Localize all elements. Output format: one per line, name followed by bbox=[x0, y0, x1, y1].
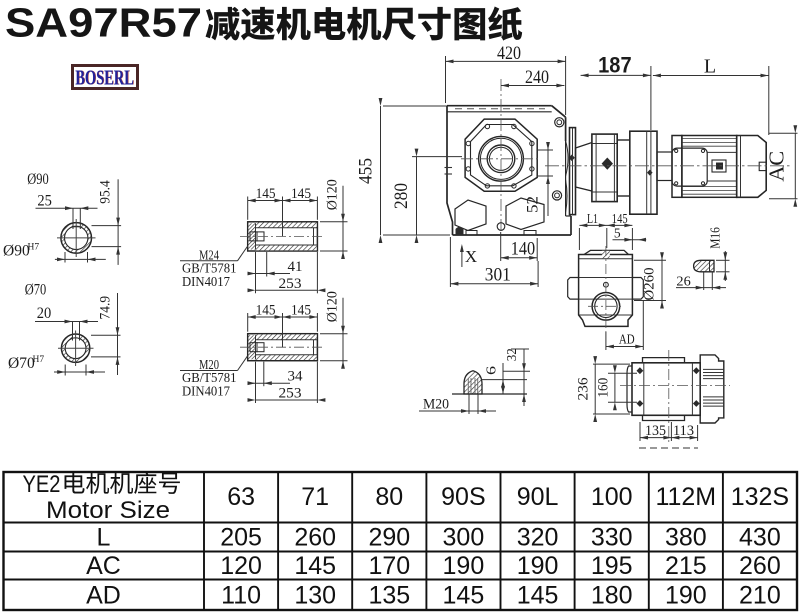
svg-text:145: 145 bbox=[256, 186, 276, 202]
svg-text:455: 455 bbox=[356, 158, 377, 184]
svg-text:AC: AC bbox=[86, 552, 121, 580]
svg-text:130: 130 bbox=[294, 582, 336, 610]
svg-text:430: 430 bbox=[739, 524, 781, 552]
svg-text:132S: 132S bbox=[731, 483, 789, 511]
svg-text:187: 187 bbox=[598, 53, 632, 78]
svg-text:120: 120 bbox=[220, 552, 262, 580]
svg-text:X: X bbox=[465, 247, 477, 266]
svg-text:380: 380 bbox=[665, 524, 707, 552]
svg-text:290: 290 bbox=[368, 524, 410, 552]
svg-text:Ø120: Ø120 bbox=[325, 179, 341, 210]
svg-text:M16: M16 bbox=[707, 227, 722, 249]
svg-text:300: 300 bbox=[443, 524, 485, 552]
svg-text:71: 71 bbox=[301, 483, 329, 511]
svg-text:140: 140 bbox=[511, 239, 535, 260]
svg-text:145: 145 bbox=[256, 303, 276, 319]
svg-text:110: 110 bbox=[221, 582, 261, 610]
svg-text:SA97R57: SA97R57 bbox=[5, 0, 202, 46]
svg-text:L: L bbox=[704, 56, 716, 78]
svg-text:34: 34 bbox=[288, 369, 304, 385]
svg-text:26: 26 bbox=[676, 273, 691, 288]
svg-text:170: 170 bbox=[368, 552, 410, 580]
svg-text:L: L bbox=[97, 524, 111, 552]
svg-text:AD: AD bbox=[86, 582, 121, 610]
svg-text:145: 145 bbox=[291, 303, 311, 319]
svg-text:H7: H7 bbox=[33, 355, 45, 365]
svg-text:195: 195 bbox=[591, 552, 633, 580]
svg-text:253: 253 bbox=[279, 386, 302, 402]
svg-text:205: 205 bbox=[220, 524, 262, 552]
svg-text:6: 6 bbox=[485, 366, 500, 375]
svg-text:95.4: 95.4 bbox=[97, 180, 113, 204]
svg-text:5: 5 bbox=[614, 225, 621, 240]
svg-text:25: 25 bbox=[37, 193, 52, 210]
svg-text:Motor Size: Motor Size bbox=[46, 497, 170, 524]
svg-text:330: 330 bbox=[591, 524, 633, 552]
svg-text:63: 63 bbox=[227, 483, 255, 511]
svg-text:190: 190 bbox=[665, 582, 707, 610]
svg-text:160: 160 bbox=[595, 378, 611, 398]
svg-text:Ø90: Ø90 bbox=[27, 171, 49, 188]
svg-text:AC: AC bbox=[765, 151, 789, 182]
svg-text:190: 190 bbox=[517, 552, 559, 580]
svg-text:20: 20 bbox=[37, 305, 52, 322]
svg-text:H7: H7 bbox=[28, 243, 40, 253]
svg-text:90S: 90S bbox=[441, 483, 485, 511]
svg-text:180: 180 bbox=[591, 582, 633, 610]
svg-text:240: 240 bbox=[525, 67, 549, 88]
svg-text:L1: L1 bbox=[587, 211, 598, 226]
svg-text:41: 41 bbox=[288, 259, 303, 275]
svg-text:Ø90: Ø90 bbox=[3, 243, 30, 260]
svg-text:Ø70: Ø70 bbox=[25, 282, 47, 299]
svg-text:260: 260 bbox=[739, 552, 781, 580]
svg-text:Ø120: Ø120 bbox=[325, 291, 341, 322]
svg-text:BOSERL: BOSERL bbox=[75, 66, 134, 90]
svg-text:145: 145 bbox=[291, 186, 311, 202]
svg-text:145: 145 bbox=[612, 211, 628, 226]
svg-text:52: 52 bbox=[524, 196, 541, 213]
svg-text:420: 420 bbox=[497, 43, 521, 64]
svg-text:Ø260: Ø260 bbox=[641, 268, 657, 301]
svg-text:210: 210 bbox=[739, 582, 781, 610]
svg-text:190: 190 bbox=[443, 552, 485, 580]
svg-text:135: 135 bbox=[645, 423, 666, 439]
svg-text:100: 100 bbox=[591, 483, 633, 511]
svg-text:320: 320 bbox=[517, 524, 559, 552]
svg-text:M20: M20 bbox=[199, 357, 219, 372]
svg-text:DIN4017: DIN4017 bbox=[182, 275, 230, 290]
svg-text:113: 113 bbox=[673, 423, 694, 439]
svg-text:AD: AD bbox=[619, 331, 635, 346]
svg-text:135: 135 bbox=[368, 582, 410, 610]
svg-text:145: 145 bbox=[443, 582, 485, 610]
svg-text:260: 260 bbox=[294, 524, 336, 552]
svg-text:280: 280 bbox=[391, 183, 412, 209]
svg-text:32: 32 bbox=[505, 348, 520, 361]
svg-text:145: 145 bbox=[517, 582, 559, 610]
svg-text:253: 253 bbox=[279, 276, 302, 292]
svg-text:215: 215 bbox=[665, 552, 707, 580]
svg-text:90L: 90L bbox=[517, 483, 559, 511]
svg-text:236: 236 bbox=[576, 378, 592, 401]
svg-text:301: 301 bbox=[485, 264, 511, 285]
svg-text:M24: M24 bbox=[199, 248, 219, 263]
svg-text:145: 145 bbox=[294, 552, 336, 580]
svg-text:M20: M20 bbox=[423, 397, 449, 413]
svg-text:DIN4017: DIN4017 bbox=[182, 385, 230, 400]
svg-text:74.9: 74.9 bbox=[98, 296, 114, 320]
svg-text:112M: 112M bbox=[655, 483, 716, 511]
svg-text:80: 80 bbox=[375, 483, 403, 511]
svg-text:Ø70: Ø70 bbox=[8, 355, 35, 372]
svg-text:YE2: YE2 bbox=[23, 471, 61, 498]
